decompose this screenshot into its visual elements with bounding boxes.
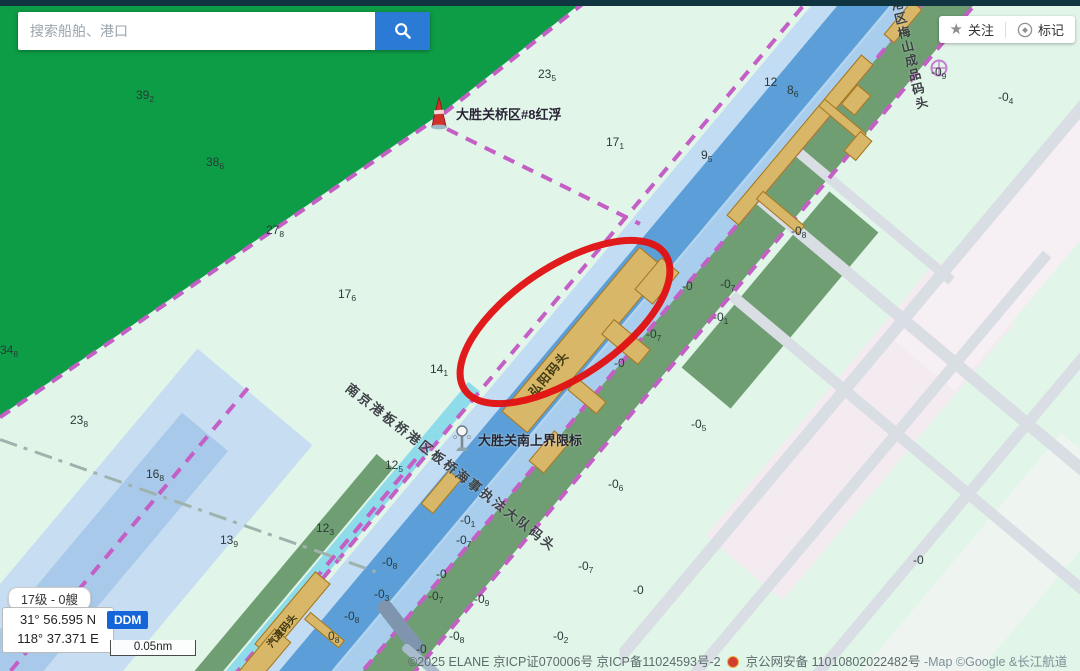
copyright-bar: ©2025 ELANE 京ICP证070006号 京ICP备11024593号-… <box>408 651 1067 670</box>
mark-button-label: 标记 <box>1038 20 1064 39</box>
search-button[interactable] <box>375 12 430 50</box>
cursor-coordinates: 31° 56.595 N 118° 37.371 E <box>2 607 114 653</box>
star-icon: ★ <box>950 22 963 37</box>
security-emblem-icon <box>727 656 739 668</box>
map-scale-bar: 0.05nm <box>110 640 196 656</box>
coordinate-format-button[interactable]: DDM <box>107 611 148 629</box>
tag-icon <box>1017 22 1033 38</box>
longitude-value: 118° 37.371 E <box>7 630 109 649</box>
security-filing-text: 京公网安备 11010802022482号 <box>746 655 921 669</box>
browser-top-strip <box>0 0 1080 6</box>
mark-button[interactable]: 标记 <box>1006 16 1075 43</box>
latitude-value: 31° 56.595 N <box>7 611 109 630</box>
map-action-bar: ★ 关注 标记 <box>939 16 1075 43</box>
map-attribution-text: -Map ©Google &长江航道 <box>924 655 1067 669</box>
follow-button[interactable]: ★ 关注 <box>939 16 1005 43</box>
search-icon <box>393 21 413 41</box>
search-input[interactable] <box>18 12 375 50</box>
search-bar[interactable] <box>18 12 430 50</box>
follow-button-label: 关注 <box>968 20 994 39</box>
nautical-chart-map[interactable]: 大胜关桥区#8红浮大胜关南上界限标弘阳码头南京港板桥港区板桥海事执法大队码头汽渡… <box>0 0 1080 671</box>
copyright-text: ©2025 ELANE 京ICP证070006号 京ICP备11024593号-… <box>408 655 721 669</box>
red-ellipse-annotation <box>0 0 1080 671</box>
